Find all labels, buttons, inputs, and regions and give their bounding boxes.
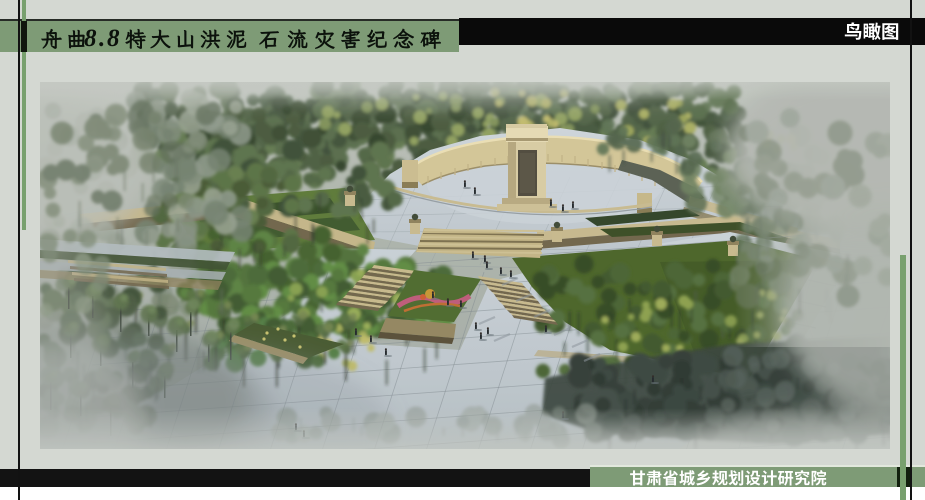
svg-text:8: 8 [107,25,120,52]
svg-text:.: . [99,25,105,52]
svg-text:8: 8 [84,25,97,52]
